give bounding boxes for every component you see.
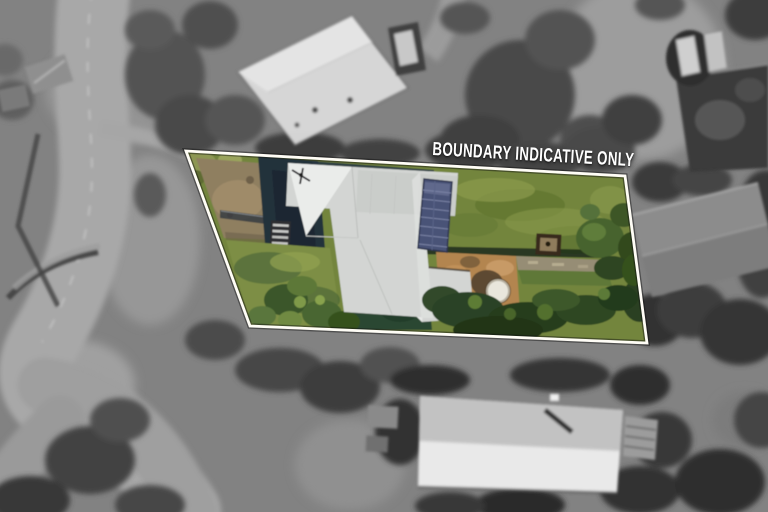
- aerial-scene: [0, 0, 768, 512]
- garden-structure: [535, 233, 561, 255]
- small-shed: [367, 405, 398, 429]
- small-shed: [366, 435, 389, 452]
- aerial-property-photo: BOUNDARY INDICATIVE ONLY: [0, 0, 768, 512]
- solar-panels: [418, 179, 452, 252]
